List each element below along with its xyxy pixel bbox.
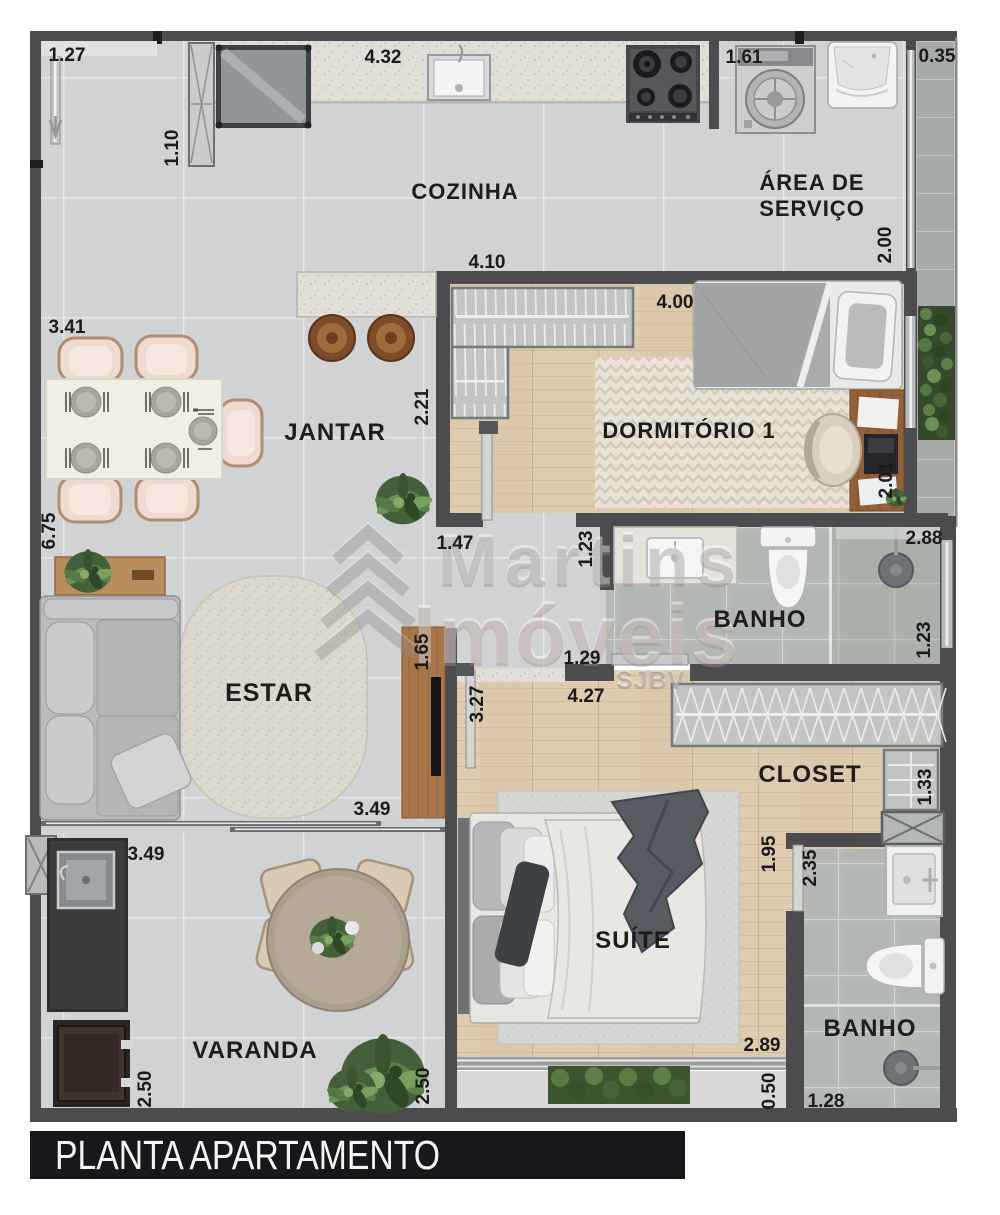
svg-text:JANTAR: JANTAR: [284, 419, 386, 446]
svg-text:CLOSET: CLOSET: [758, 761, 861, 788]
svg-text:1.10: 1.10: [162, 130, 183, 167]
svg-text:ÁREA DE: ÁREA DE: [759, 170, 864, 195]
svg-text:3.41: 3.41: [49, 317, 86, 338]
svg-text:DORMITÓRIO 1: DORMITÓRIO 1: [602, 418, 775, 443]
svg-text:4.32: 4.32: [365, 47, 402, 68]
svg-text:2.50: 2.50: [413, 1068, 434, 1105]
svg-text:SJBV: SJBV: [616, 667, 685, 695]
svg-text:Imóveis: Imóveis: [413, 590, 740, 684]
svg-text:SUÍTE: SUÍTE: [595, 926, 671, 954]
svg-text:PLANTA APARTAMENTO: PLANTA APARTAMENTO: [55, 1132, 440, 1178]
svg-text:2.89: 2.89: [744, 1035, 781, 1056]
svg-text:VARANDA: VARANDA: [192, 1037, 317, 1064]
svg-text:3.49: 3.49: [128, 844, 165, 865]
svg-text:6.75: 6.75: [39, 512, 60, 549]
svg-text:2.50: 2.50: [135, 1071, 156, 1108]
svg-text:BANHO: BANHO: [824, 1015, 917, 1042]
svg-text:2.01: 2.01: [876, 461, 897, 498]
svg-text:1.47: 1.47: [437, 533, 474, 554]
svg-text:1.29: 1.29: [564, 648, 601, 669]
svg-text:4.10: 4.10: [469, 252, 506, 273]
svg-text:SERVIÇO: SERVIÇO: [759, 196, 865, 221]
svg-text:1.28: 1.28: [808, 1091, 845, 1112]
svg-text:2.21: 2.21: [412, 388, 433, 425]
svg-text:2.88: 2.88: [906, 528, 943, 549]
svg-text:1.23: 1.23: [576, 531, 597, 568]
svg-text:2.35: 2.35: [800, 849, 821, 886]
svg-text:3.27: 3.27: [467, 686, 488, 723]
svg-text:1.33: 1.33: [915, 769, 936, 806]
svg-text:ESTAR: ESTAR: [225, 679, 313, 707]
svg-text:1.23: 1.23: [914, 622, 935, 659]
svg-text:2.00: 2.00: [875, 227, 896, 264]
svg-text:1.65: 1.65: [412, 633, 433, 670]
svg-text:1.61: 1.61: [726, 47, 763, 68]
svg-text:1.27: 1.27: [49, 45, 86, 66]
svg-text:4.00: 4.00: [657, 292, 694, 313]
svg-text:0.50: 0.50: [759, 1073, 780, 1110]
svg-text:BANHO: BANHO: [714, 606, 807, 633]
svg-text:3.49: 3.49: [354, 799, 391, 820]
svg-text:COZINHA: COZINHA: [411, 179, 518, 204]
svg-text:1.95: 1.95: [759, 835, 780, 872]
svg-text:0.35: 0.35: [919, 46, 956, 67]
svg-text:4.27: 4.27: [568, 686, 605, 707]
